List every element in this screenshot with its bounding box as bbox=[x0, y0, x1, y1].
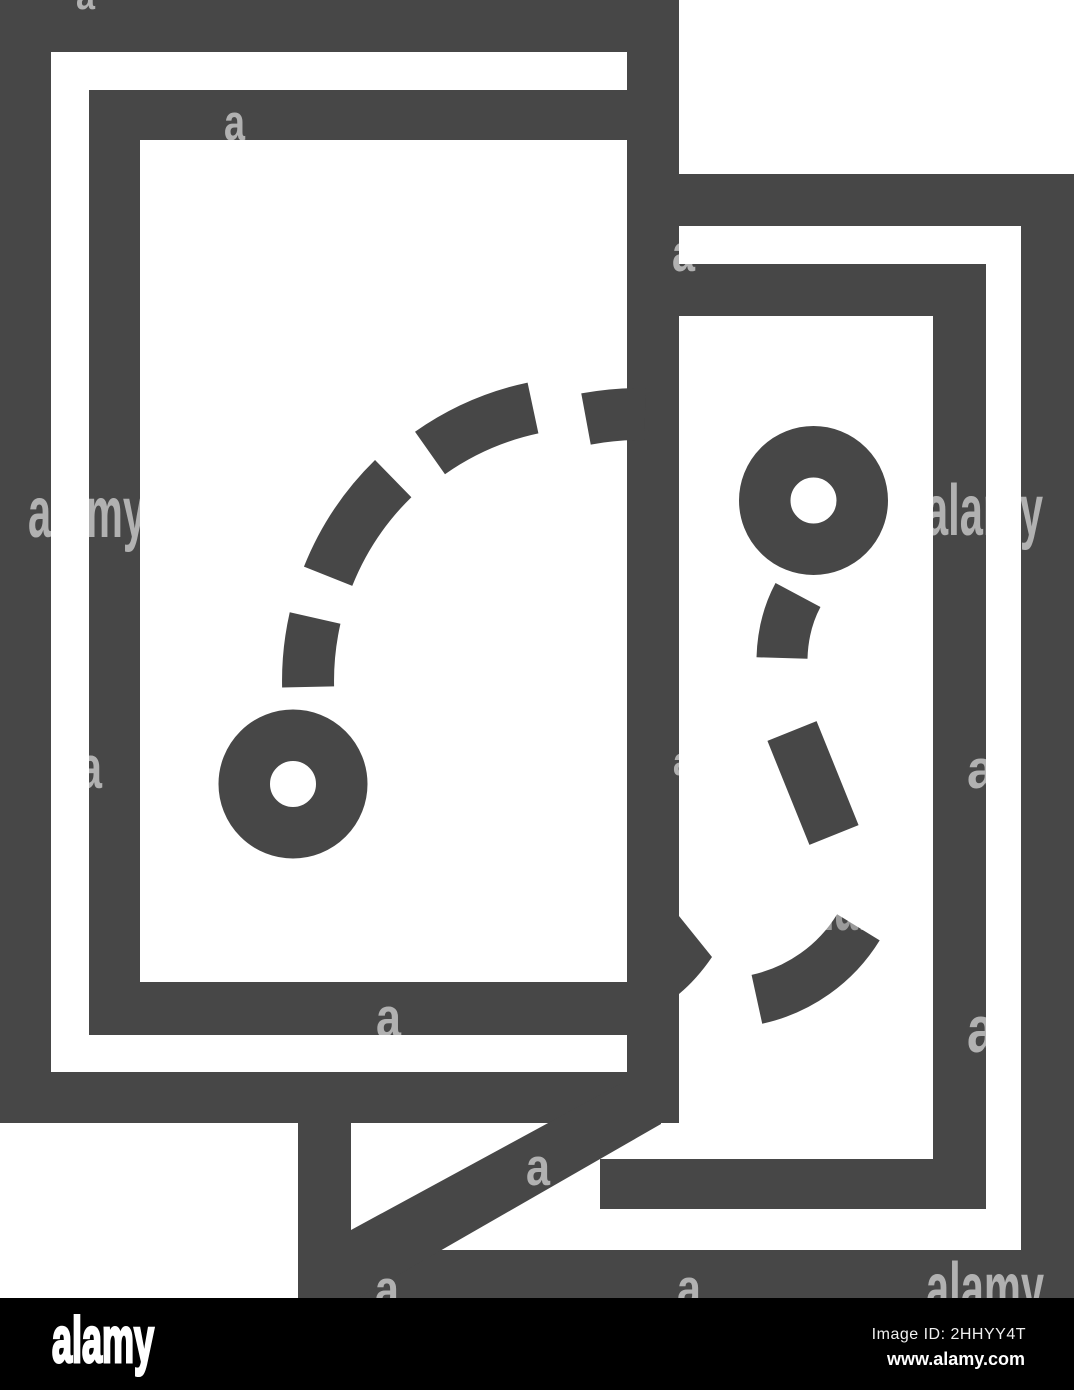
svg-text:www.alamy.com: www.alamy.com bbox=[886, 1349, 1025, 1369]
svg-text:a: a bbox=[967, 992, 996, 1066]
svg-text:a: a bbox=[76, 0, 96, 18]
svg-text:a: a bbox=[79, 734, 102, 801]
svg-text:alamy: alamy bbox=[28, 473, 146, 553]
svg-text:alamy: alamy bbox=[925, 471, 1043, 551]
svg-text:alamy: alamy bbox=[52, 1304, 154, 1376]
svg-text:a: a bbox=[672, 224, 695, 283]
svg-text:a: a bbox=[224, 94, 245, 151]
svg-text:Image ID: 2HHYY4T: Image ID: 2HHYY4T bbox=[872, 1326, 1026, 1343]
svg-text:a: a bbox=[967, 738, 995, 800]
svg-text:alamy: alamy bbox=[800, 866, 918, 946]
svg-text:a: a bbox=[673, 740, 692, 784]
svg-text:a: a bbox=[526, 1138, 550, 1197]
svg-text:a: a bbox=[376, 986, 402, 1050]
